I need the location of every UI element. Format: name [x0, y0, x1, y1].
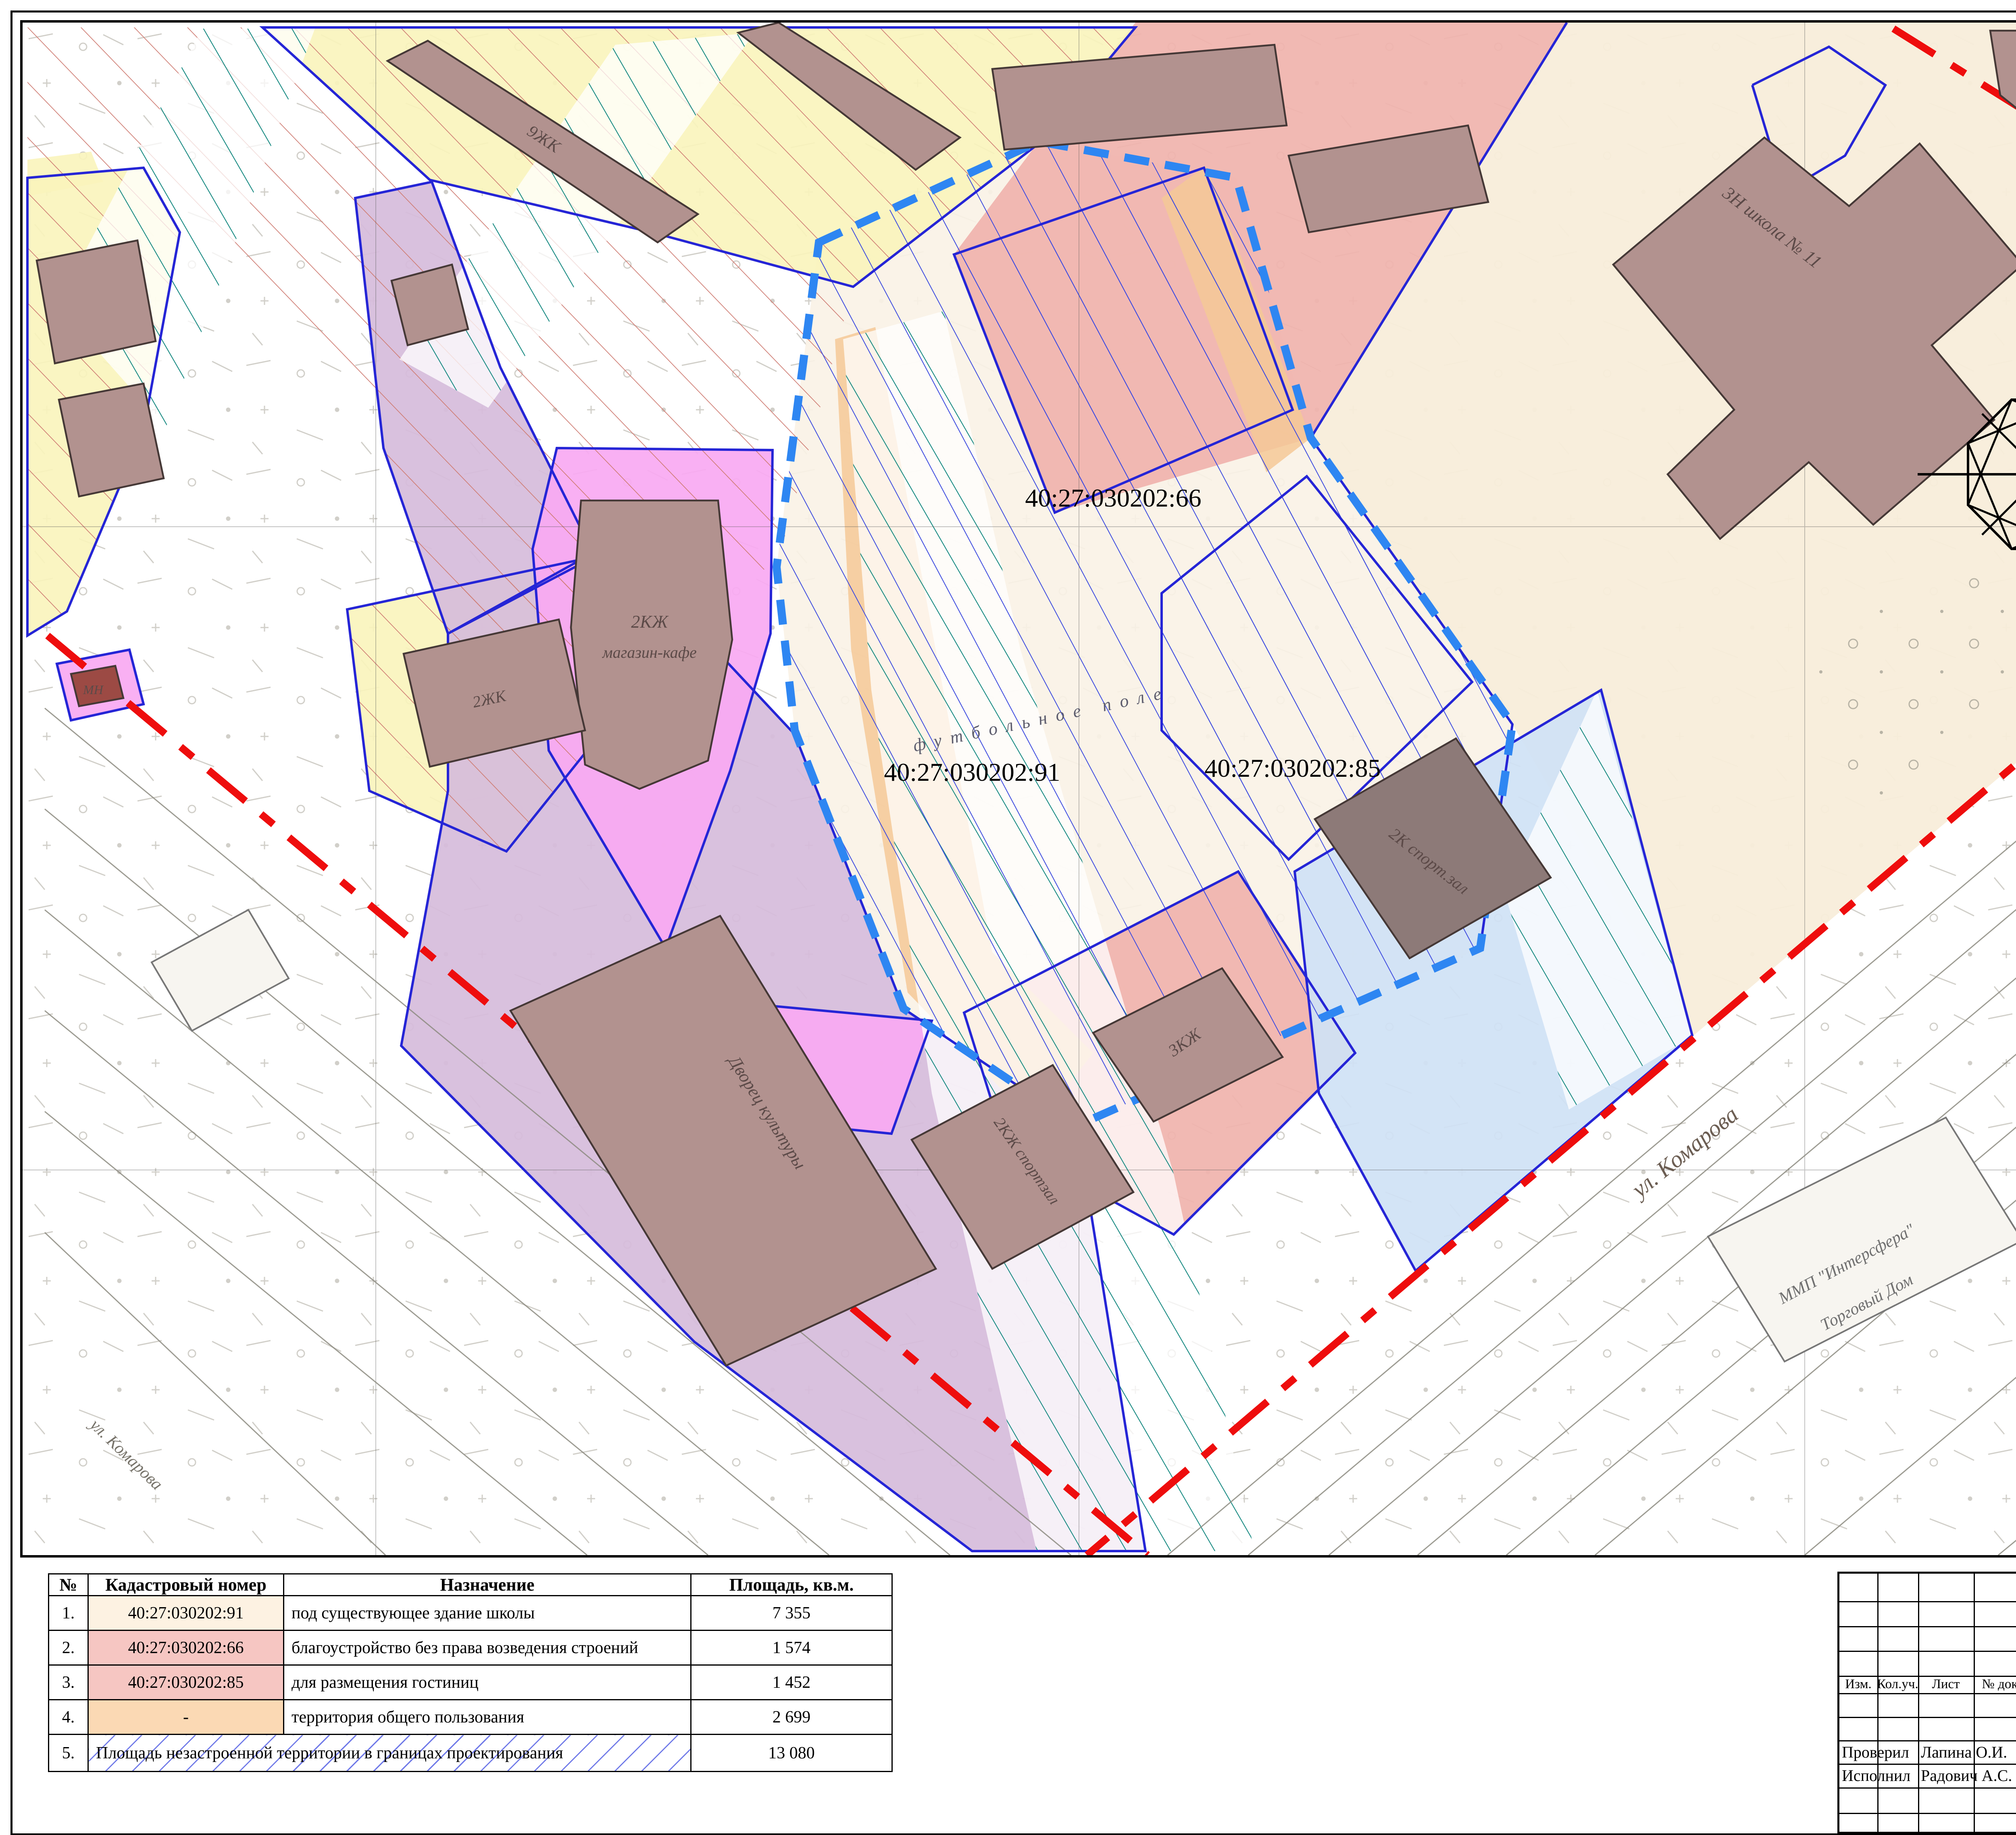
- col-list: Лист: [1918, 1676, 1974, 1693]
- table-row: 1. 40:27:030202:91 под существующее здан…: [49, 1596, 892, 1631]
- table-row: 4. - территория общего пользования 2 699: [49, 1700, 892, 1735]
- parcel-label-85: 40:27:030202:85: [1204, 754, 1381, 782]
- title-block: Изм. Кол.уч. Лист № док. Подпись Дата Пр…: [1837, 1572, 2016, 1834]
- checked-name: Лапина О.И.: [1921, 1743, 2007, 1762]
- table-header-row: № Кадастровый номер Назначение Площадь, …: [49, 1574, 892, 1596]
- parcel-label-66: 40:27:030202:66: [1025, 484, 1201, 512]
- table-row: 3. 40:27:030202:85 для размещения гостин…: [49, 1665, 892, 1700]
- col-ndok: № док.: [1974, 1676, 2016, 1693]
- executed-label: Исполнил: [1842, 1766, 1910, 1785]
- shop-cafe-label-1: 2КЖ: [631, 612, 669, 632]
- map-area: С 40:27:030202:91 40:27:030202:85 40:27:…: [20, 20, 2016, 1558]
- bld-mn-label: МН: [83, 682, 104, 697]
- col-header-num: №: [49, 1574, 88, 1596]
- col-header-cadastral: Кадастровый номер: [88, 1574, 284, 1596]
- col-header-purpose: Назначение: [284, 1574, 691, 1596]
- col-izm: Изм.: [1839, 1676, 1877, 1693]
- parcels-table: № Кадастровый номер Назначение Площадь, …: [48, 1573, 893, 1772]
- table-row: 5. Площадь незастроенной территории в гр…: [49, 1735, 892, 1772]
- checked-label: Проверил: [1842, 1743, 1909, 1762]
- shop-cafe-label-2: магазин-кафе: [602, 643, 697, 661]
- parcel-label-91: 40:27:030202:91: [884, 758, 1060, 786]
- executed-name: Радович А.С.: [1921, 1766, 2012, 1785]
- col-koluch: Кол.уч.: [1877, 1676, 1918, 1693]
- drawing-sheet: С 40:27:030202:91 40:27:030202:85 40:27:…: [0, 0, 2016, 1835]
- map-canvas: С 40:27:030202:91 40:27:030202:85 40:27:…: [23, 23, 2016, 1555]
- table-row: 2. 40:27:030202:66 благоустройство без п…: [49, 1631, 892, 1665]
- col-header-area: Площадь, кв.м.: [691, 1574, 892, 1596]
